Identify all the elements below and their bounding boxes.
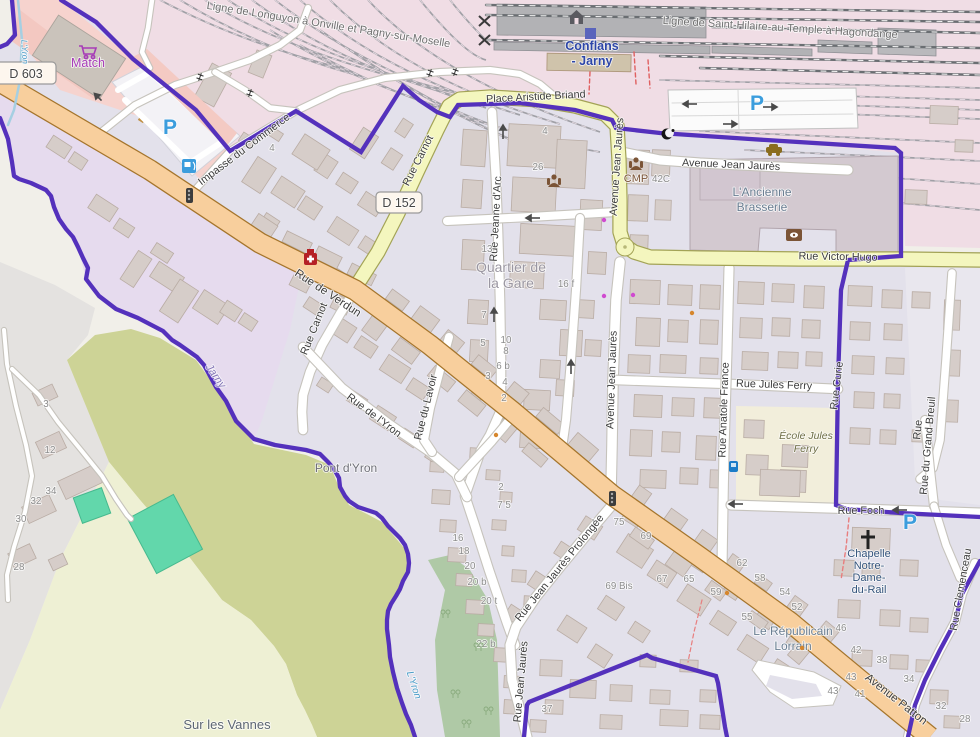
svg-text:7 5: 7 5 [497, 500, 511, 511]
svg-text:7: 7 [481, 310, 486, 321]
svg-text:6 b: 6 b [496, 361, 510, 372]
svg-text:69 Bis: 69 Bis [605, 581, 632, 592]
svg-text:P: P [903, 511, 917, 534]
svg-text:Lorrain: Lorrain [774, 639, 811, 653]
svg-text:59: 59 [711, 587, 722, 598]
svg-text:2: 2 [501, 393, 506, 404]
svg-text:Pont d'Yron: Pont d'Yron [315, 461, 377, 475]
svg-text:65: 65 [684, 574, 695, 585]
svg-text:Chapelle: Chapelle [847, 548, 890, 560]
svg-text:5: 5 [480, 338, 486, 349]
svg-text:D 152: D 152 [382, 196, 415, 210]
svg-text:34: 34 [46, 486, 57, 497]
svg-text:30: 30 [16, 514, 27, 525]
svg-text:67: 67 [657, 574, 668, 585]
svg-text:Dame-: Dame- [852, 572, 885, 584]
svg-text:20: 20 [465, 561, 476, 572]
svg-text:16 f: 16 f [558, 279, 575, 290]
svg-text:8: 8 [503, 346, 509, 357]
svg-text:20 t: 20 t [481, 596, 498, 607]
svg-text:2: 2 [498, 482, 503, 493]
svg-text:41: 41 [855, 689, 866, 700]
svg-text:37: 37 [542, 704, 553, 715]
svg-text:16: 16 [453, 533, 464, 544]
svg-text:58: 58 [755, 573, 766, 584]
svg-text:Ferry: Ferry [794, 443, 819, 455]
svg-text:46: 46 [836, 623, 847, 634]
svg-text:L'Ancienne: L'Ancienne [732, 185, 791, 199]
svg-text:38: 38 [877, 655, 888, 666]
svg-text:55: 55 [742, 612, 753, 623]
svg-text:D 603: D 603 [9, 67, 42, 81]
svg-text:20 b: 20 b [467, 577, 487, 588]
svg-text:- Jarny: - Jarny [572, 54, 613, 68]
svg-text:18: 18 [459, 546, 470, 557]
svg-text:Rue: Rue [911, 419, 925, 440]
svg-text:P: P [750, 92, 764, 115]
svg-text:69: 69 [641, 531, 652, 542]
svg-text:32: 32 [31, 496, 42, 507]
svg-text:12: 12 [45, 445, 56, 456]
svg-text:la Gare: la Gare [488, 275, 534, 291]
svg-text:28: 28 [960, 714, 971, 725]
svg-text:Conflans: Conflans [565, 39, 619, 53]
svg-text:École Jules: École Jules [779, 429, 833, 442]
svg-text:62: 62 [737, 558, 748, 569]
svg-text:43: 43 [828, 686, 839, 697]
svg-text:43: 43 [846, 672, 857, 683]
svg-text:Notre-: Notre- [854, 560, 885, 572]
svg-text:Quartier de: Quartier de [476, 259, 546, 275]
svg-text:3: 3 [43, 399, 49, 410]
svg-text:42C: 42C [652, 174, 670, 185]
svg-text:54: 54 [780, 587, 791, 598]
svg-text:4: 4 [542, 126, 548, 137]
svg-text:L'Yron: L'Yron [19, 39, 30, 64]
svg-text:CMP: CMP [624, 173, 648, 185]
svg-text:P: P [163, 116, 177, 139]
svg-text:Rue Victor Hugo: Rue Victor Hugo [798, 250, 877, 263]
svg-text:52: 52 [792, 602, 803, 613]
svg-text:du-Rail: du-Rail [852, 584, 887, 596]
svg-text:42: 42 [851, 645, 862, 656]
svg-text:26: 26 [533, 162, 544, 173]
svg-text:75: 75 [614, 517, 625, 528]
svg-text:Rue Foch: Rue Foch [838, 505, 885, 517]
svg-text:28: 28 [14, 562, 25, 573]
svg-text:10: 10 [501, 335, 512, 346]
svg-text:Le Républicain: Le Républicain [753, 624, 832, 638]
svg-text:34: 34 [904, 674, 915, 685]
svg-text:13: 13 [482, 244, 493, 255]
svg-text:3: 3 [485, 371, 491, 382]
svg-text:Sur les Vannes: Sur les Vannes [183, 717, 271, 732]
svg-text:Brasserie: Brasserie [737, 200, 788, 214]
svg-text:4: 4 [269, 143, 275, 154]
svg-text:4: 4 [502, 377, 508, 388]
svg-text:32: 32 [936, 701, 947, 712]
